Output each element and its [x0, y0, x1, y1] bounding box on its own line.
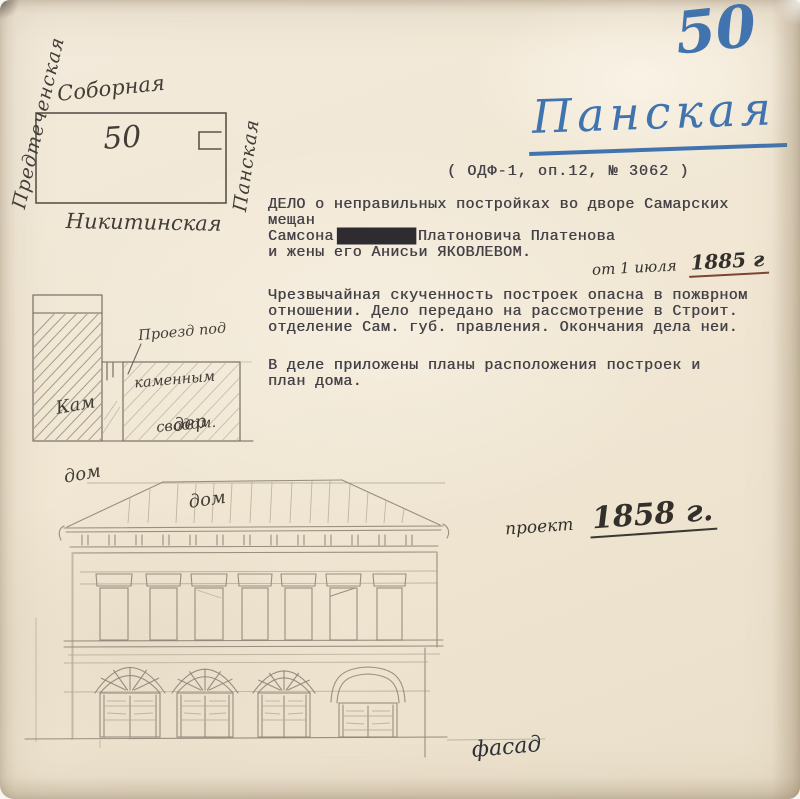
passage-annotation: Проезд под каменным сводом.: [127, 291, 238, 469]
street-label-bottom: Никитинская: [66, 209, 222, 236]
page-edge-left: [0, 0, 16, 799]
wood-house-l2: дом: [187, 485, 227, 516]
typed-line: отношении. Дело передано на рассмотрение…: [268, 304, 747, 320]
corner-highlight: [740, 0, 800, 40]
typed-line: В деле приложены планы расположения пост…: [268, 358, 747, 374]
page-edge-top: [0, 0, 800, 14]
archive-card-page: 50 Панская ( ОДФ-1, оп.12, № 3062 ) ДЕЛО…: [0, 0, 800, 799]
corner-shadow: [0, 0, 46, 46]
project-year: 1858 г.: [588, 493, 718, 539]
stone-house-l2: дом: [62, 458, 109, 488]
passage-l1: Проезд под: [138, 321, 227, 344]
archive-reference: ( ОДФ-1, оп.12, № 3062 ): [447, 163, 689, 180]
handwritten-date: от 1 июля1885 г: [570, 228, 770, 300]
typed-line: план дома.: [268, 374, 747, 390]
passage-l3: сводом.: [156, 414, 235, 436]
date-year: 1885 г: [688, 247, 769, 278]
stone-house-l1: Кам: [54, 390, 97, 420]
project-label: проект: [504, 515, 574, 540]
page-edge-bottom: [0, 777, 800, 799]
overstruck-word: ██████████: [337, 228, 415, 245]
plot-number: 50: [102, 119, 143, 157]
facade-caption-l1: фасад: [471, 730, 558, 764]
date-prefix: от 1 июля: [592, 256, 678, 278]
passage-l2: каменным: [134, 368, 231, 392]
typed-line: отделение Сам. губ. правления. Окончания…: [268, 320, 747, 336]
typed-line: мещан: [268, 213, 747, 229]
page-edge-right: [772, 0, 800, 799]
typed-line: ДЕЛО о неправильных постройках во дворе …: [268, 197, 747, 213]
typed-line-part: Самсона: [268, 228, 334, 245]
street-title-blue: Панская: [527, 81, 787, 156]
